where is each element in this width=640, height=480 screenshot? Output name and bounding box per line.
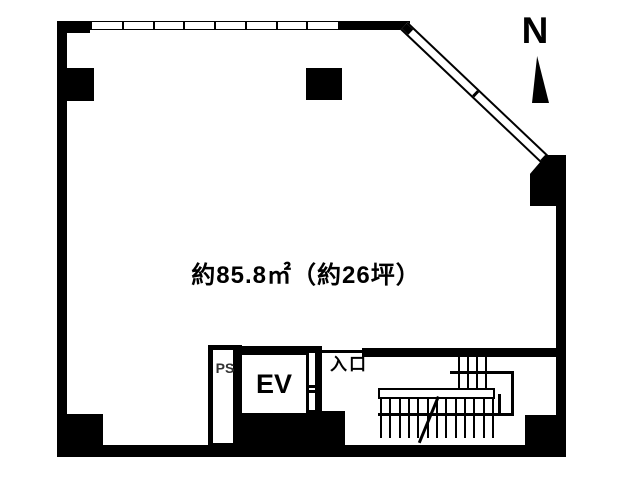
stair-tread [492, 399, 494, 438]
diagonal-window-mullion [472, 90, 479, 97]
pipe-space-label: PS [208, 348, 242, 388]
window-mullion [306, 22, 308, 29]
stair-tread [408, 399, 410, 438]
pillar-bottom-left [57, 414, 103, 446]
window-mullion [214, 22, 216, 29]
compass-north-label: N [522, 12, 549, 49]
compass-needle-icon [532, 56, 549, 103]
stair-tread [427, 399, 429, 438]
entrance-door-line [320, 350, 364, 353]
stair-tread [455, 399, 457, 438]
stair-tread [458, 357, 460, 390]
window-mullion [183, 22, 185, 29]
stair-tread [445, 399, 447, 438]
floor-area-label: 約85.8㎡（約26坪） [191, 264, 420, 288]
stair-tread [417, 399, 419, 438]
stair-tread [399, 399, 401, 438]
pillar-top-right [530, 155, 566, 206]
floor-plan: 約85.8㎡（約26坪） 入口 EV PS N [0, 0, 640, 480]
window-mullion [276, 22, 278, 29]
stair-tread [473, 399, 475, 438]
stair-tread [436, 399, 438, 438]
interior-wall [362, 348, 556, 357]
stair-tread [380, 399, 382, 438]
elevator-label: EV [242, 355, 306, 413]
wall-bottom [57, 445, 566, 457]
stair-tread [467, 357, 469, 390]
stair-tread [464, 399, 466, 438]
stair-tread [476, 357, 478, 390]
stair-tread [389, 399, 391, 438]
stair-tread [483, 399, 485, 438]
elevator-door-track [309, 353, 315, 410]
window-mullion [153, 22, 155, 29]
elevator-door-tick [309, 385, 315, 388]
entrance-label: 入口 [330, 356, 368, 373]
pillar-bottom-right [525, 415, 556, 446]
stair-rail-right [511, 371, 514, 416]
stair-tread [485, 357, 487, 390]
window-mullion [122, 22, 124, 29]
pillar-top-middle [306, 68, 342, 100]
elevator-door-tick [309, 390, 315, 393]
wall-top-corner-pad [57, 21, 90, 33]
diagonal-window-end-cap [402, 23, 413, 34]
elevator-step [315, 411, 345, 446]
pillar-top-left [62, 68, 94, 101]
window-mullion [245, 22, 247, 29]
